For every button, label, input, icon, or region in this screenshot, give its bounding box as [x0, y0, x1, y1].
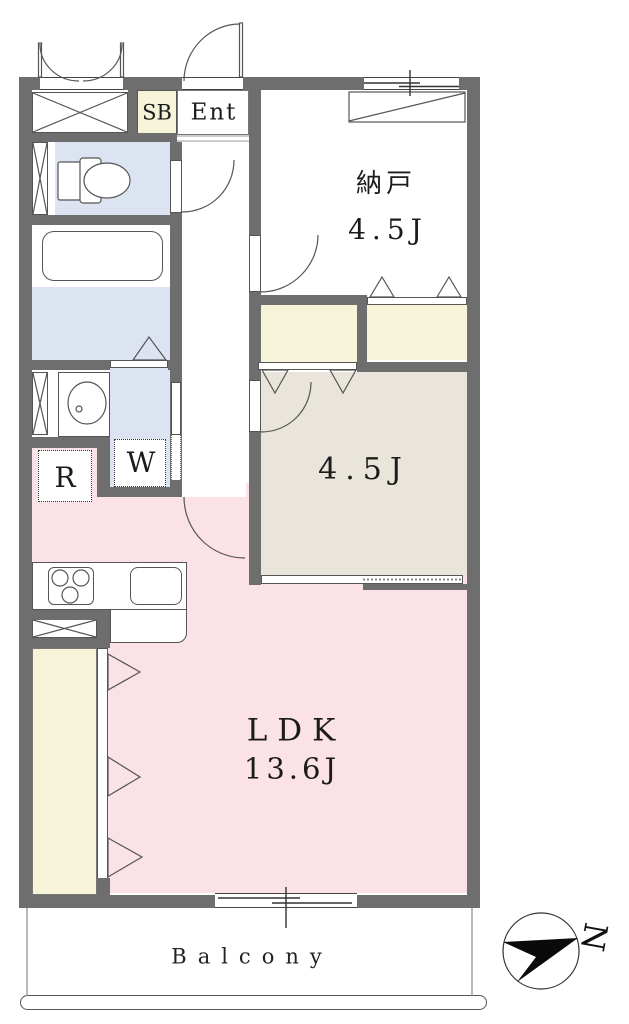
- label-nando-size: 4.5J: [348, 216, 428, 244]
- label-balcony: Balcony: [171, 947, 332, 968]
- genkan-closet-arc-right: [83, 44, 122, 81]
- room-bath-floor: [32, 287, 172, 360]
- label-washer: W: [127, 449, 156, 477]
- wall-washroom-bottom: [97, 487, 182, 497]
- western-door-gap: [249, 380, 261, 432]
- label-western-size: 4.5J: [318, 455, 410, 485]
- label-nando-name: 納戸: [356, 171, 416, 197]
- pipe-space-toilet: [32, 142, 48, 215]
- balcony-window: [215, 893, 357, 908]
- closet-left-floor: [258, 305, 357, 362]
- label-sb: SB: [142, 103, 172, 124]
- wall-left: [19, 77, 32, 908]
- tall-closet-floor: [32, 648, 97, 895]
- vanity-sink: [58, 372, 110, 437]
- kitchen-counter-return: [110, 609, 187, 643]
- bathtub: [42, 231, 163, 281]
- label-entrance: Ent: [191, 102, 238, 125]
- closet-right-floor: [367, 305, 467, 360]
- entry-door-arc: [184, 24, 240, 81]
- balcony-railing: [20, 995, 487, 1010]
- stove: [48, 567, 94, 605]
- wall-closet-south: [357, 362, 467, 372]
- label-fridge: R: [54, 464, 75, 492]
- label-ldk-size: 13.6J: [244, 755, 340, 784]
- toilet-door-gap: [170, 160, 182, 213]
- wall-washroom-fridge: [32, 437, 98, 448]
- wall-bath-washroom-stub: [168, 360, 182, 370]
- nando-window: [364, 77, 459, 90]
- wall-closet-bottom-stub: [97, 878, 110, 908]
- western-ldk-slider-track: [261, 575, 463, 584]
- genkan-closet-leaf-right: [121, 43, 124, 77]
- nando-door-gap: [249, 235, 261, 292]
- genkan-closet-box: [32, 92, 128, 133]
- ldk-door-opening: [182, 483, 246, 497]
- washroom-slider-panel: [171, 382, 181, 435]
- genkan-closet-arc-left: [40, 44, 79, 81]
- compass-icon: N: [503, 913, 615, 989]
- genkan-closet-leaf-left: [39, 43, 42, 77]
- wall-closet-divider: [357, 295, 367, 372]
- washroom-slider-pocket: [171, 435, 181, 480]
- wall-western-bottom-bar: [363, 584, 467, 590]
- compass-needle: [503, 938, 578, 982]
- label-ldk-name: LDK: [247, 716, 346, 747]
- wall-main-vertical: [249, 77, 261, 585]
- pipe-space-washroom: [32, 372, 48, 435]
- wall-right: [467, 77, 480, 908]
- entry-door-opening: [182, 77, 243, 90]
- closet-left-track: [258, 362, 357, 370]
- compass-north-label: N: [573, 920, 615, 954]
- wall-bath-washroom: [19, 360, 110, 370]
- wall-kitchen-vert: [97, 610, 110, 648]
- floorplan-canvas: SB Ent 納戸 4.5J 4.5J LDK 13.6J R W Balcon…: [0, 0, 629, 1024]
- wall-sb-divider: [128, 90, 137, 133]
- closet-right-track: [367, 297, 467, 305]
- room-corridor-floor: [177, 90, 249, 483]
- tall-closet-track: [97, 648, 108, 895]
- wall-toilet-bottom: [19, 215, 182, 225]
- room-toilet-floor: [55, 142, 172, 215]
- bath-door-track: [110, 360, 168, 368]
- kitchen-storage-box: [32, 619, 97, 638]
- entry-door-leaf: [240, 23, 243, 77]
- wall-entrance-row: [19, 133, 177, 142]
- wall-nando-bottom: [261, 295, 367, 305]
- genkan-closet-opening: [40, 77, 123, 90]
- kitchen-sink: [130, 567, 182, 605]
